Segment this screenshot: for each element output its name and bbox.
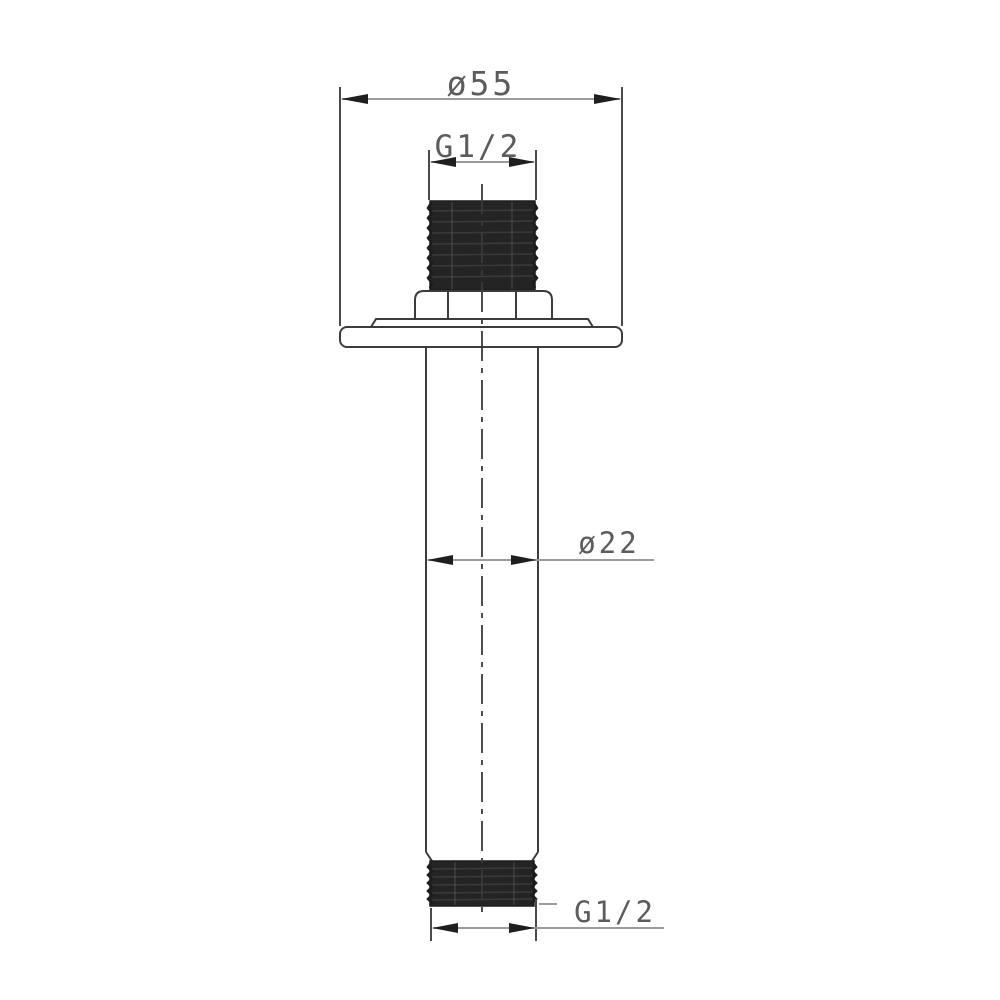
dimension-arm-diameter: ø22: [427, 526, 654, 565]
label-arm-diameter: ø22: [578, 526, 639, 560]
label-top-thread-size: G1/2: [435, 129, 522, 165]
arrowhead-left-icon: [427, 555, 453, 565]
shower-arm-technical-drawing: ø55 G1/2: [0, 0, 1000, 1000]
thread-serration-right: [533, 203, 537, 288]
arrowhead-left-icon: [432, 923, 458, 933]
arrowhead-left-icon: [341, 94, 368, 104]
label-flange-diameter: ø55: [447, 64, 516, 103]
arrowhead-right-icon: [511, 555, 537, 565]
tube-taper-left: [426, 852, 432, 861]
arrowhead-right-icon: [594, 94, 621, 104]
ceiling-flange: [340, 327, 622, 347]
tube-taper-right: [532, 852, 538, 861]
drawing-canvas: ø55 G1/2: [0, 0, 1000, 1000]
label-bottom-thread-size: G1/2: [574, 895, 656, 929]
thread-serration-left: [428, 203, 432, 288]
arrowhead-right-icon: [509, 923, 535, 933]
nut-profile: [415, 291, 552, 319]
hex-nut: [415, 291, 552, 319]
